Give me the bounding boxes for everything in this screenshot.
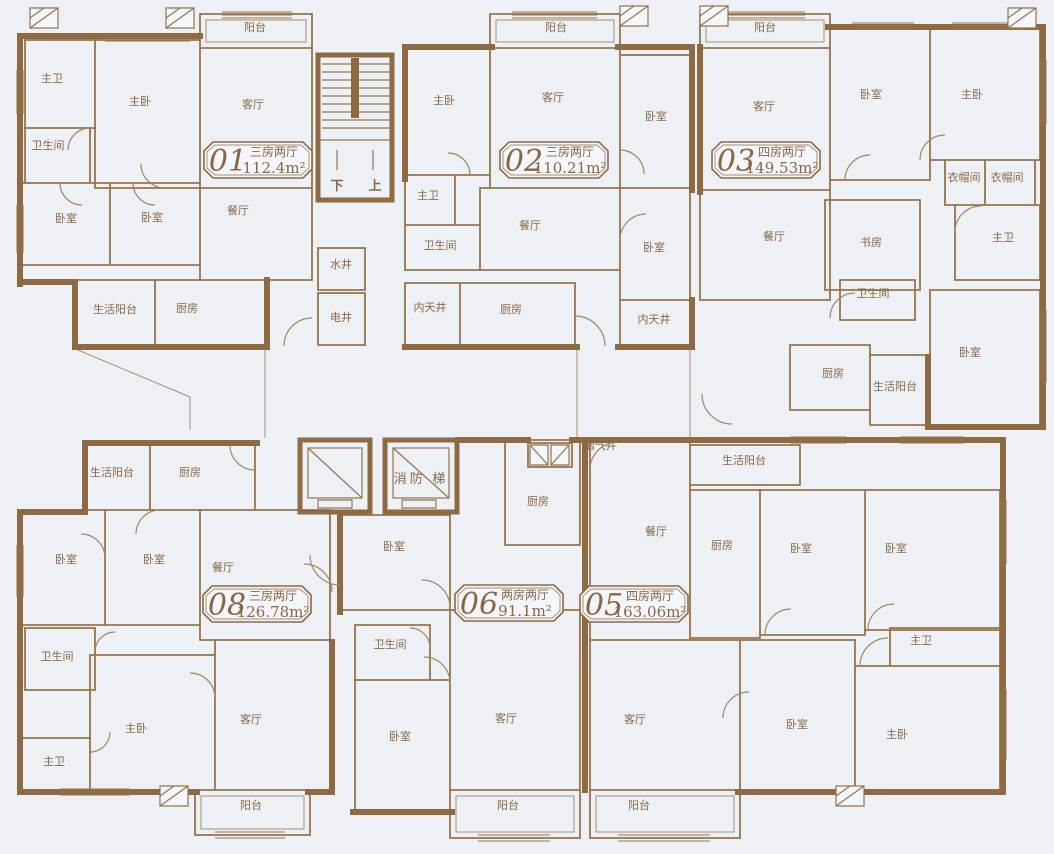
unit-layout: 三房两厅 [250, 144, 298, 159]
room-label: 内天井 [414, 300, 447, 314]
room-label: 卧室 [643, 240, 665, 254]
room-label: 餐厅 [227, 203, 249, 217]
room-label: 卧室 [55, 211, 77, 225]
unit-layout: 四房两厅 [626, 588, 674, 603]
room-label: 卫生间 [424, 238, 457, 252]
room-label: 厨房 [500, 303, 522, 316]
room-label: 客厅 [240, 712, 262, 726]
room-label: 生活阳台 [722, 453, 766, 467]
room-label: 主卧 [129, 95, 151, 108]
room-label: 水井 [330, 257, 352, 271]
room-label: 餐厅 [519, 218, 541, 232]
room-label: 卧室 [143, 552, 165, 566]
room-label: 客厅 [624, 712, 646, 726]
room-label: 卧室 [860, 87, 882, 101]
room-label: 烟气井 [584, 438, 617, 452]
room-label: 厨房 [527, 495, 549, 508]
room-label: 客厅 [495, 711, 517, 725]
room-label: 厨房 [711, 539, 733, 552]
room-label: 卫生间 [41, 649, 74, 663]
unit-area: 110.21m² [534, 159, 607, 177]
room-label: 餐厅 [763, 229, 785, 243]
unit-area: 126.78m² [237, 603, 310, 621]
room-label: 主卧 [125, 722, 147, 735]
room-label: 阳台 [240, 798, 262, 812]
room-label: 主卧 [961, 88, 983, 101]
unit-layout: 三房两厅 [249, 588, 297, 603]
room-label: 衣帽间 [991, 170, 1024, 184]
room-label: 卫生间 [32, 138, 65, 152]
room-label: 餐厅 [645, 524, 667, 538]
room-label: 主卫 [41, 72, 63, 85]
plan-background [0, 0, 1054, 854]
room-label: 阳台 [754, 20, 776, 34]
room-label: 卧室 [790, 541, 812, 555]
room-label: 卧室 [645, 109, 667, 123]
room-label: 生活阳台 [93, 302, 137, 316]
room-label: 阳台 [628, 798, 650, 812]
room-label: 生活阳台 [873, 379, 917, 393]
room-label: 卧室 [786, 717, 808, 731]
room-label: 卧室 [885, 541, 907, 555]
room-label: 书房 [860, 236, 882, 249]
room-label: 客厅 [753, 99, 775, 113]
unit-box-08: 08 三房两厅 126.78m² [203, 586, 311, 623]
room-label: 卧室 [959, 345, 981, 359]
unit-layout: 三房两厅 [546, 144, 594, 159]
room-label: 阳台 [244, 20, 266, 34]
room-label: 主卫 [992, 231, 1014, 244]
unit-area: 112.4m² [242, 159, 305, 177]
room-label: 餐厅 [212, 560, 234, 574]
unit-area: 163.06m² [614, 603, 687, 621]
unit-box-03: 03 四房两厅 149.53m² [712, 142, 820, 179]
floor-plan-page: 下 上 消防 梯 阳台主卫主卧客厅卫生间卧室卧室餐厅生活阳台厨房水井电井阳台主卧… [0, 0, 1054, 854]
room-label: 卫生间 [374, 637, 407, 651]
room-label: 阳台 [497, 798, 519, 812]
stair-up-label: 上 [368, 178, 381, 193]
room-label: 主卫 [910, 634, 932, 647]
room-label: 客厅 [542, 90, 564, 104]
unit-box-01: 01 三房两厅 112.4m² [204, 142, 312, 179]
unit-layout: 四房两厅 [758, 144, 806, 159]
room-label: 内天井 [638, 312, 671, 326]
room-label: 主卫 [417, 189, 439, 202]
room-label: 厨房 [179, 466, 201, 479]
stair-center-wall [351, 58, 359, 118]
floor-plan-canvas: 下 上 消防 梯 阳台主卫主卧客厅卫生间卧室卧室餐厅生活阳台厨房水井电井阳台主卧… [0, 0, 1054, 854]
room-label: 卧室 [383, 539, 405, 553]
unit-box-05: 05 四房两厅 163.06m² [580, 586, 688, 623]
room-label: 阳台 [545, 20, 567, 34]
room-label: 厨房 [176, 302, 198, 315]
room-label: 主卧 [886, 728, 908, 741]
unit-number: 06 [460, 587, 498, 622]
unit-layout: 两房两厅 [501, 587, 549, 602]
stair-down-label: 下 [330, 178, 343, 193]
unit-area: 149.53m² [746, 159, 819, 177]
unit-number: 01 [209, 144, 247, 179]
room-label: 主卫 [43, 755, 65, 768]
room-label: 生活阳台 [90, 465, 134, 479]
fire-elevator-label: 消防 梯 [394, 471, 449, 486]
unit-box-02: 02 三房两厅 110.21m² [500, 142, 608, 179]
room-label: 电井 [330, 310, 352, 324]
room-label: 卫生间 [857, 286, 890, 300]
room-label: 主卧 [433, 94, 455, 107]
room-label: 衣帽间 [948, 170, 981, 184]
room-label: 卧室 [389, 729, 411, 743]
unit-area: 91.1m² [498, 602, 552, 620]
room-label: 卧室 [55, 552, 77, 566]
room-label: 客厅 [242, 97, 264, 111]
room-label: 卧室 [141, 210, 163, 224]
room-label: 厨房 [822, 367, 844, 380]
unit-box-06: 06 两房两厅 91.1m² [455, 585, 563, 622]
